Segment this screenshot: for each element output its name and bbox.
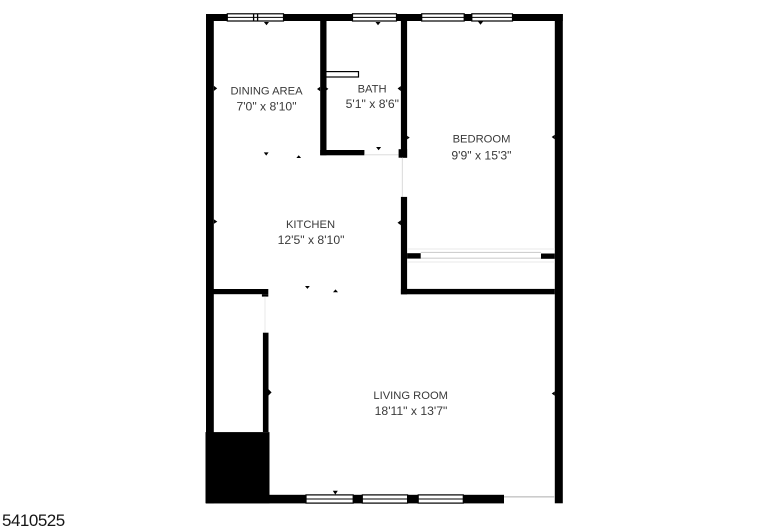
svg-text:BEDROOM: BEDROOM — [453, 133, 511, 145]
svg-text:9'9" x 15'3": 9'9" x 15'3" — [451, 149, 511, 163]
svg-text:LIVING ROOM: LIVING ROOM — [373, 390, 448, 402]
svg-text:18'11" x 13'7": 18'11" x 13'7" — [375, 404, 448, 418]
svg-text:7'0" x 8'10": 7'0" x 8'10" — [236, 100, 296, 114]
svg-text:BATH: BATH — [358, 83, 387, 95]
svg-text:5410525: 5410525 — [2, 511, 65, 530]
svg-text:12'5" x 8'10": 12'5" x 8'10" — [278, 233, 345, 247]
svg-text:DINING AREA: DINING AREA — [230, 85, 303, 97]
svg-text:5'1" x 8'6": 5'1" x 8'6" — [346, 97, 399, 111]
svg-text:KITCHEN: KITCHEN — [286, 219, 335, 231]
